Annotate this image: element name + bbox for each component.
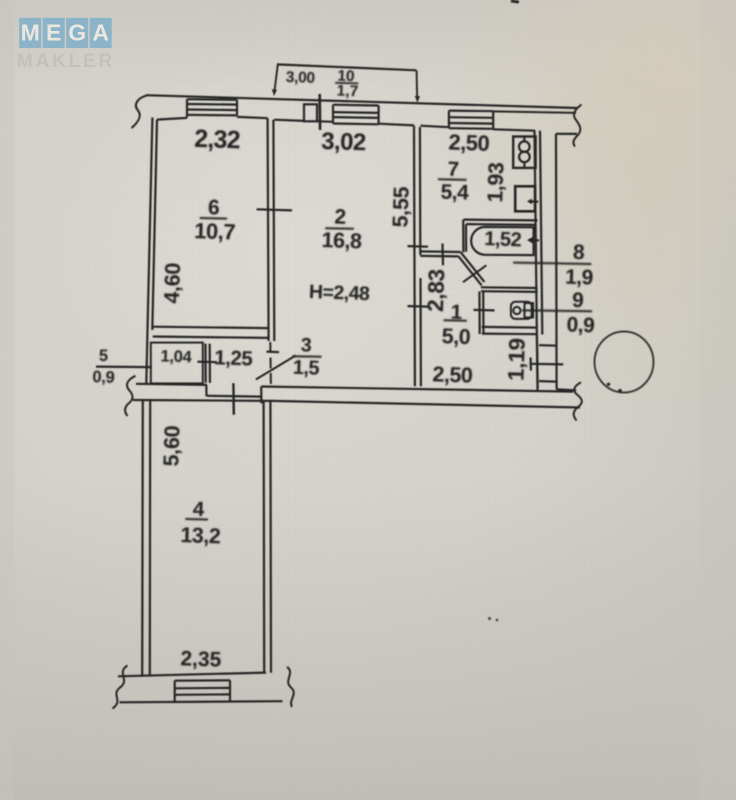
svg-text:MAKLER: MAKLER — [17, 51, 115, 72]
svg-text:8: 8 — [573, 241, 586, 264]
svg-text:0,9: 0,9 — [92, 368, 115, 387]
svg-text:2,35: 2,35 — [180, 647, 222, 671]
svg-text:E: E — [46, 20, 61, 46]
svg-text:16,8: 16,8 — [321, 228, 362, 253]
svg-text:3,02: 3,02 — [321, 128, 366, 157]
svg-text:10,7: 10,7 — [194, 218, 236, 244]
svg-text:0,9: 0,9 — [566, 313, 594, 337]
svg-text:9: 9 — [572, 289, 584, 312]
svg-text:2,50: 2,50 — [448, 129, 490, 155]
svg-text:1,19: 1,19 — [503, 338, 529, 381]
svg-text:4: 4 — [192, 498, 205, 521]
svg-text:2,50: 2,50 — [432, 362, 473, 387]
svg-text:1,9: 1,9 — [565, 266, 593, 290]
svg-text:3,00: 3,00 — [285, 69, 315, 87]
svg-text:5: 5 — [99, 347, 109, 365]
svg-text:4,60: 4,60 — [160, 262, 185, 304]
svg-text:1,93: 1,93 — [483, 162, 508, 203]
svg-text:1,52: 1,52 — [484, 228, 522, 251]
svg-text:M: M — [21, 20, 40, 46]
svg-text:7: 7 — [447, 158, 459, 181]
svg-text:1,7: 1,7 — [336, 83, 358, 101]
svg-text:13,2: 13,2 — [180, 523, 221, 548]
svg-text:2,32: 2,32 — [194, 125, 240, 155]
svg-text:1,25: 1,25 — [214, 346, 253, 370]
svg-text:5,4: 5,4 — [440, 181, 469, 205]
svg-text:G: G — [68, 20, 86, 46]
svg-text:5,55: 5,55 — [388, 186, 413, 228]
svg-text:2,83: 2,83 — [423, 269, 449, 312]
svg-text:1,04: 1,04 — [160, 347, 193, 366]
svg-text:3: 3 — [300, 334, 312, 356]
svg-text:5,0: 5,0 — [441, 324, 471, 349]
svg-text:5,60: 5,60 — [159, 425, 184, 467]
svg-text:A: A — [92, 20, 109, 46]
svg-text:6: 6 — [208, 196, 220, 219]
svg-text:1,5: 1,5 — [292, 357, 319, 380]
svg-text:H=2,48: H=2,48 — [309, 281, 371, 305]
svg-text:2: 2 — [334, 206, 346, 229]
